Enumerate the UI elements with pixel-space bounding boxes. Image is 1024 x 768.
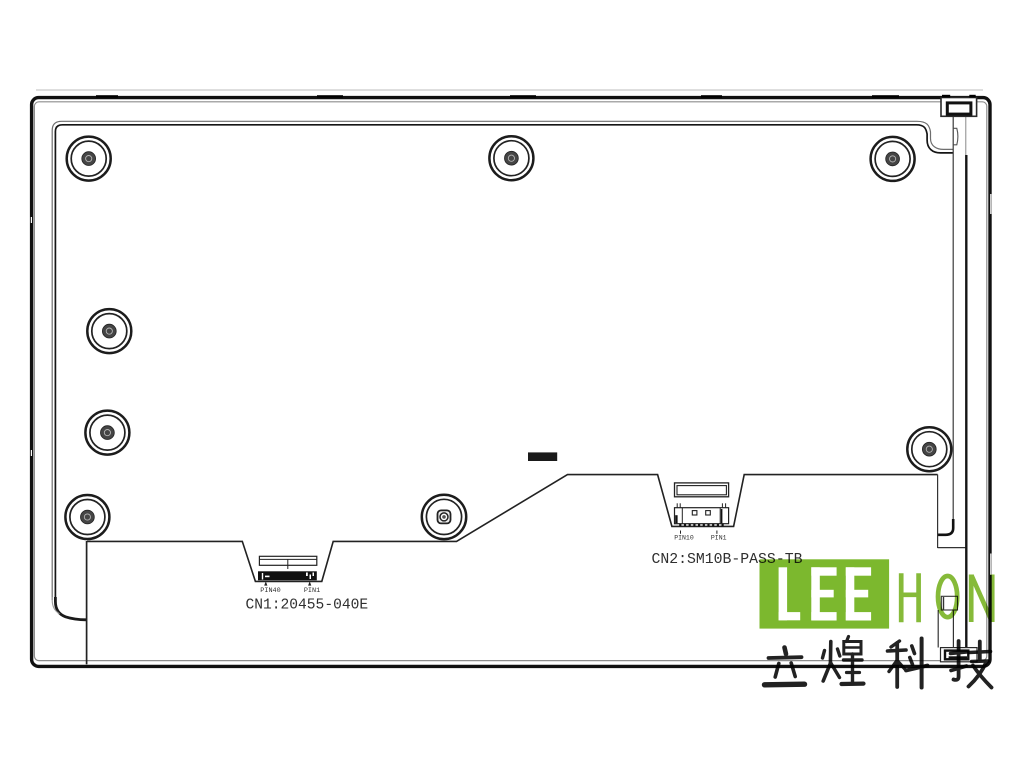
svg-text:PIN10: PIN10 [674, 535, 694, 542]
svg-text:PIN1: PIN1 [304, 587, 320, 595]
svg-text:CN1:20455-040E: CN1:20455-040E [246, 598, 369, 614]
svg-text:PIN1: PIN1 [711, 535, 727, 542]
svg-text:PIN40: PIN40 [260, 587, 280, 595]
